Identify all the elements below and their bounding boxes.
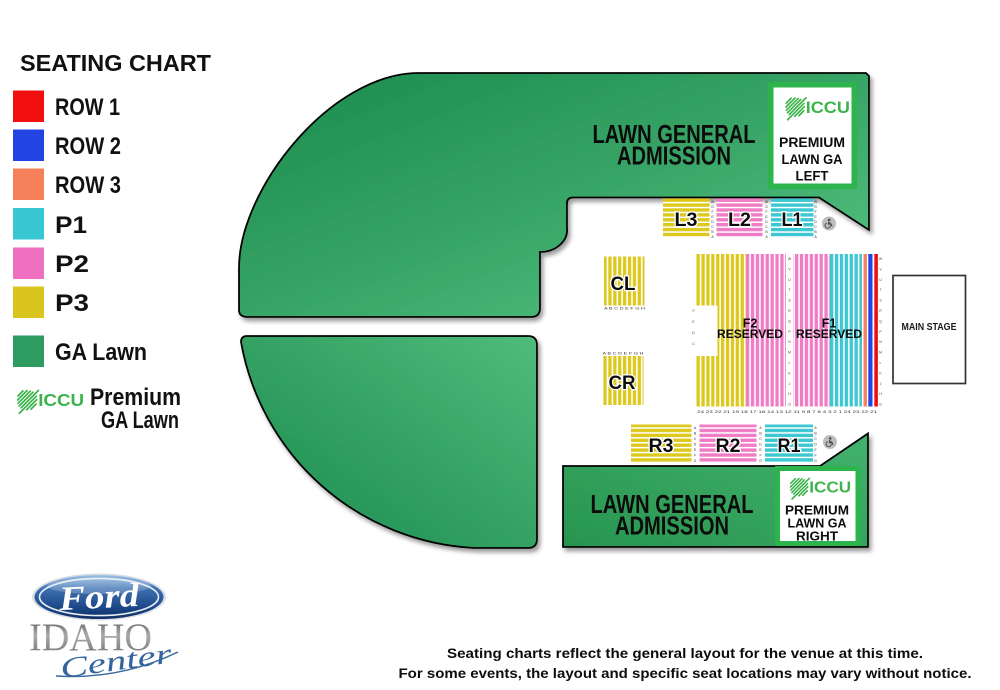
- svg-text:FEDC: FEDC: [692, 309, 695, 346]
- svg-text:For some events, the layout an: For some events, the layout and specific…: [399, 666, 972, 681]
- svg-text:WGFEDCBA: WGFEDCBA: [765, 200, 769, 239]
- svg-text:RESERVED: RESERVED: [717, 327, 783, 341]
- svg-text:GA Lawn: GA Lawn: [55, 339, 147, 366]
- svg-text:RESERVED: RESERVED: [796, 327, 862, 341]
- svg-text:L2: L2: [728, 210, 751, 231]
- svg-text:ROW 3: ROW 3: [55, 172, 121, 199]
- svg-text:A B C D E F G H: A B C D E F G H: [603, 352, 645, 356]
- svg-text:Seating charts reflect the gen: Seating charts reflect the general layou…: [447, 646, 923, 661]
- svg-text:R3: R3: [649, 436, 674, 457]
- svg-text:24 23 22 21 19 18 17 16 14 13: 24 23 22 21 19 18 17 16 14 13 12 11 9 8 …: [697, 410, 877, 414]
- svg-text:RIGHT: RIGHT: [796, 529, 838, 544]
- svg-text:L1: L1: [782, 210, 803, 231]
- svg-text:LAWN GA: LAWN GA: [782, 152, 843, 167]
- svg-text:ROW 1: ROW 1: [55, 94, 120, 121]
- svg-text:LEFT: LEFT: [796, 169, 830, 184]
- svg-text:MAIN STAGE: MAIN STAGE: [902, 322, 957, 333]
- svg-text:CR: CR: [609, 373, 636, 394]
- svg-text:CL: CL: [611, 274, 636, 295]
- svg-text:WGFEDCBA: WGFEDCBA: [711, 200, 715, 239]
- svg-text:P1: P1: [55, 212, 87, 239]
- svg-text:ROW 2: ROW 2: [55, 133, 121, 160]
- svg-text:P3: P3: [55, 290, 89, 317]
- svg-text:WVUTSRQPNMLKJHG: WVUTSRQPNMLKJHG: [788, 257, 792, 407]
- svg-text:PREMIUM: PREMIUM: [779, 135, 845, 150]
- svg-text:ADMISSION: ADMISSION: [617, 141, 731, 171]
- svg-text:GA Lawn: GA Lawn: [101, 407, 179, 434]
- svg-text:SEATING CHART: SEATING CHART: [20, 50, 212, 76]
- svg-text:ABCDEFG: ABCDEFG: [759, 426, 762, 463]
- svg-text:ABCDEFG: ABCDEFG: [694, 426, 697, 463]
- svg-text:R2: R2: [716, 436, 741, 457]
- svg-text:Ford: Ford: [57, 577, 141, 618]
- svg-text:R1: R1: [778, 436, 801, 457]
- svg-text:WGFEDCBA: WGFEDCBA: [814, 200, 818, 239]
- svg-text:ADMISSION: ADMISSION: [615, 511, 729, 541]
- svg-text:L3: L3: [675, 210, 698, 231]
- svg-text:ABCDEFG: ABCDEFG: [814, 426, 817, 463]
- svg-text:A B C D E F G H: A B C D E F G H: [604, 307, 646, 311]
- svg-text:P2: P2: [55, 251, 89, 278]
- svg-text:WVUTSRQPNMLKJHG: WVUTSRQPNMLKJHG: [879, 257, 883, 407]
